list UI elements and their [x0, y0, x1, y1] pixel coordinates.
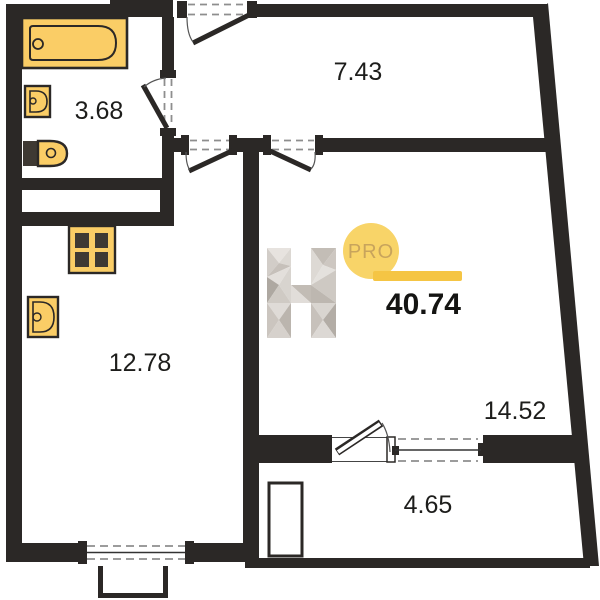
bathroom-door: [143, 70, 176, 136]
kitchen-window: [78, 541, 194, 564]
toilet-bowl: [38, 141, 67, 166]
room-label-hallway: 7.43: [334, 58, 383, 86]
door-swing-arc: [144, 78, 166, 87]
window-jamb: [78, 541, 87, 564]
stove-burner: [95, 252, 108, 267]
washbasin-icon: [25, 86, 50, 117]
stove-burner: [75, 233, 89, 248]
toilet-icon: [23, 141, 67, 166]
door-leaf: [268, 150, 311, 170]
room-label-kitchen: 12.78: [109, 349, 172, 377]
floor-plan: PRO 40.74 3.68 7.43 12.78 14.52 4.65: [0, 0, 600, 600]
door-swing-arc: [187, 17, 193, 42]
accent-bar: [373, 271, 462, 281]
room-label-balcony: 4.65: [404, 491, 453, 519]
door-jamb: [181, 135, 189, 155]
kitchen-sink-icon: [28, 297, 58, 337]
wall-segment: [257, 4, 548, 17]
door-swing-arc: [311, 152, 315, 169]
door-leaf: [143, 85, 167, 128]
door-jamb: [160, 70, 176, 78]
wall-segment: [321, 138, 550, 152]
entrance-door: [177, 1, 257, 43]
french-balcony-wall: [98, 593, 168, 598]
duct-void: [22, 190, 160, 212]
logo-h: [267, 248, 336, 338]
wall-segment: [243, 138, 259, 562]
bathtub-icon: [22, 18, 127, 68]
total-area-label: 40.74: [386, 288, 461, 321]
balcony-window: [392, 439, 486, 461]
balcony-cabinet: [269, 483, 302, 556]
toilet-tank: [23, 141, 38, 166]
french-balcony-outline: [98, 566, 168, 598]
floor-plan-drawing: PRO 40.74 3.68 7.43 12.78 14.52 4.65: [0, 0, 600, 600]
wall-segment: [483, 435, 578, 463]
wall-segment: [110, 0, 173, 17]
pro-badge-label: PRO: [348, 241, 394, 263]
wall-segment: [533, 3, 599, 566]
window-jamb: [185, 541, 194, 564]
door-jamb: [177, 1, 187, 18]
stove-burner: [95, 233, 108, 248]
door-leaf: [189, 150, 234, 171]
door-jamb: [160, 128, 176, 136]
wall-segment: [6, 543, 78, 562]
room-label-bathroom: 3.68: [75, 97, 124, 125]
kitchen-door: [181, 135, 237, 171]
wall-segment: [6, 4, 22, 562]
stove-icon: [69, 226, 115, 273]
wall-segment: [245, 558, 590, 568]
wall-segment: [162, 17, 174, 71]
room-label-living-room: 14.52: [484, 397, 547, 425]
door-leaf: [193, 14, 251, 43]
door-jamb: [315, 135, 323, 155]
living-room-door: [263, 135, 323, 170]
pro-badge: PRO: [343, 223, 462, 281]
wall-segment: [259, 435, 332, 463]
wall-segment: [194, 543, 245, 562]
balcony-door: [332, 423, 395, 462]
stove-burner: [75, 252, 89, 267]
